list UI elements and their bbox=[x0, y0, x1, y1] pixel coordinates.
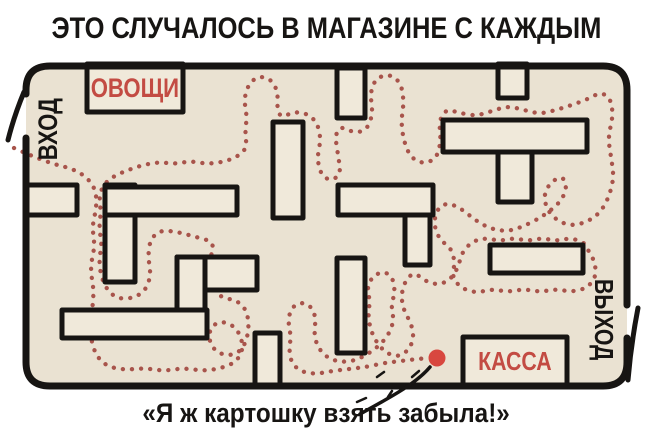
entrance-sign: ВХОД bbox=[32, 79, 64, 179]
shelf bbox=[27, 185, 77, 215]
shelf bbox=[337, 258, 365, 353]
shelf bbox=[255, 333, 280, 385]
entrance-door bbox=[8, 92, 24, 140]
shelf bbox=[490, 245, 583, 273]
shelf bbox=[337, 68, 365, 118]
path-end-dot bbox=[429, 350, 446, 367]
vegetables-sign: ОВОЩИ bbox=[87, 64, 183, 112]
shelf bbox=[405, 215, 430, 265]
entrance-sign-text: ВХОД bbox=[33, 98, 64, 160]
checkout-sign: КАССА bbox=[463, 337, 567, 385]
shelf bbox=[498, 152, 532, 202]
exit-sign: ВЫХОД bbox=[588, 270, 620, 370]
comic-caption-text: «Я ж картошку взять забыла!» bbox=[142, 396, 509, 430]
checkout-sign-text: КАССА bbox=[478, 346, 552, 377]
exit-door bbox=[628, 308, 638, 380]
comic-caption: «Я ж картошку взять забыла!» bbox=[0, 396, 652, 430]
shelf bbox=[177, 257, 205, 310]
vegetables-sign-text: ОВОЩИ bbox=[91, 73, 179, 104]
shelf bbox=[273, 122, 303, 218]
shelf bbox=[338, 185, 433, 215]
shelf bbox=[443, 120, 587, 152]
comic-store-maze: ЭТО СЛУЧАЛОСЬ В МАГАЗИНЕ С КАЖДЫМ ОВОЩИ … bbox=[0, 0, 652, 446]
exit-sign-text: ВЫХОД bbox=[589, 279, 620, 360]
shelf bbox=[105, 187, 237, 215]
shelf bbox=[62, 310, 207, 338]
